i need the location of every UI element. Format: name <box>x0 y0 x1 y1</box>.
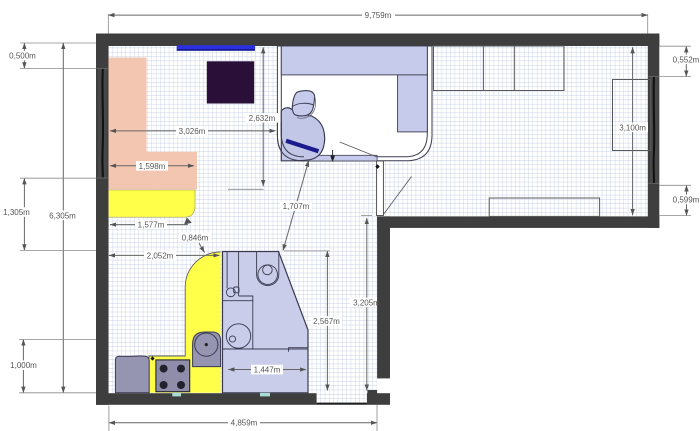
svg-text:3,026m: 3,026m <box>179 127 206 136</box>
svg-text:1,305m: 1,305m <box>3 208 30 217</box>
svg-text:1,598m: 1,598m <box>139 162 166 171</box>
svg-text:2,567m: 2,567m <box>313 317 340 326</box>
svg-text:6,305m: 6,305m <box>49 211 76 220</box>
svg-text:4,859m: 4,859m <box>231 419 258 428</box>
svg-text:1,447m: 1,447m <box>254 366 281 375</box>
svg-text:0,552m: 0,552m <box>673 55 700 64</box>
svg-text:2,052m: 2,052m <box>147 252 174 261</box>
svg-text:9,759m: 9,759m <box>365 11 392 20</box>
svg-text:2,632m: 2,632m <box>249 114 276 123</box>
svg-text:3,205m: 3,205m <box>353 299 380 308</box>
svg-text:3,100m: 3,100m <box>619 123 646 132</box>
svg-text:1,577m: 1,577m <box>138 221 165 230</box>
svg-text:0,599m: 0,599m <box>673 196 700 205</box>
svg-text:0,846m: 0,846m <box>182 234 209 243</box>
svg-text:1,707m: 1,707m <box>283 202 310 211</box>
svg-text:0,500m: 0,500m <box>9 52 36 61</box>
svg-text:1,000m: 1,000m <box>10 361 37 370</box>
